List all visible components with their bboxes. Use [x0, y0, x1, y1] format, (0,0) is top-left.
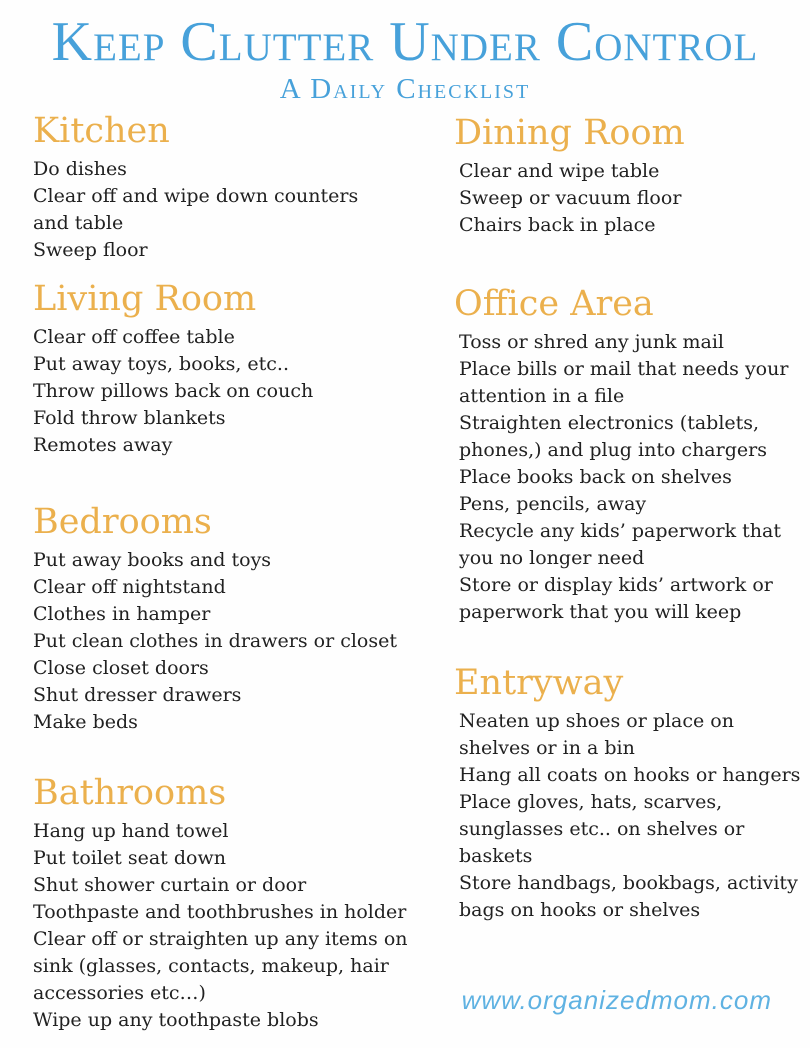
checklist-item: Straighten electronics (tablets, phones,…: [459, 410, 810, 464]
checklist-item: Clear off and wipe down counters and tab…: [33, 183, 452, 237]
section-office-area: Office Area Toss or shred any junk mail …: [452, 285, 810, 626]
checklist-item: Remotes away: [33, 432, 452, 459]
section-heading-office-area: Office Area: [454, 285, 810, 324]
checklist-item: Clothes in hamper: [33, 601, 452, 628]
checklist-item: Pens, pencils, away: [459, 491, 810, 518]
section-bedrooms: Bedrooms Put away books and toys Clear o…: [33, 503, 452, 736]
section-heading-entryway: Entryway: [454, 664, 810, 703]
checklist-item: Place bills or mail that needs your atte…: [459, 356, 810, 410]
section-living-room: Living Room Clear off coffee table Put a…: [33, 280, 452, 459]
checklist-item: Recycle any kids’ paperwork that you no …: [459, 518, 810, 572]
living-room-items: Clear off coffee table Put away toys, bo…: [33, 324, 452, 459]
dining-room-items: Clear and wipe table Sweep or vacuum flo…: [454, 158, 810, 239]
checklist-item: Toss or shred any junk mail: [459, 329, 810, 356]
bedrooms-items: Put away books and toys Clear off nights…: [33, 547, 452, 736]
checklist-item: Put clean clothes in drawers or closet: [33, 628, 452, 655]
checklist-item: Place books back on shelves: [459, 464, 810, 491]
section-dining-room: Dining Room Clear and wipe table Sweep o…: [452, 114, 810, 239]
checklist-item: Clear off or straighten up any items on …: [33, 926, 452, 1007]
section-kitchen: Kitchen Do dishes Clear off and wipe dow…: [33, 112, 452, 264]
checklist-item: Throw pillows back on couch: [33, 378, 452, 405]
website-url: www.organizedmom.com: [462, 985, 772, 1016]
left-column: Kitchen Do dishes Clear off and wipe dow…: [33, 112, 452, 1034]
section-heading-living-room: Living Room: [33, 280, 452, 319]
checklist-item: Shut dresser drawers: [33, 682, 452, 709]
checklist-item: Hang up hand towel: [33, 818, 452, 845]
checklist-item: Do dishes: [33, 156, 452, 183]
checklist-item: Make beds: [33, 709, 452, 736]
checklist-item: Clear off coffee table: [33, 324, 452, 351]
checklist-item: Close closet doors: [33, 655, 452, 682]
page-subtitle: A Daily Checklist: [0, 72, 810, 106]
checklist-item: Sweep floor: [33, 237, 452, 264]
page-title: Keep Clutter Under Control: [0, 12, 810, 72]
section-entryway: Entryway Neaten up shoes or place on she…: [452, 664, 810, 924]
section-heading-kitchen: Kitchen: [33, 112, 452, 151]
checklist-item: Wipe up any toothpaste blobs: [33, 1007, 452, 1034]
bathrooms-items: Hang up hand towel Put toilet seat down …: [33, 818, 452, 1034]
checklist-item: Put away books and toys: [33, 547, 452, 574]
checklist-item: Place gloves, hats, scarves, sunglasses …: [459, 789, 810, 870]
checklist-item: Store or display kids’ artwork or paperw…: [459, 572, 810, 626]
checklist-item: Hang all coats on hooks or hangers: [459, 762, 810, 789]
section-heading-bedrooms: Bedrooms: [33, 503, 452, 542]
right-column: Dining Room Clear and wipe table Sweep o…: [452, 112, 810, 1034]
office-area-items: Toss or shred any junk mail Place bills …: [454, 329, 810, 626]
checklist-item: Clear and wipe table: [459, 158, 810, 185]
entryway-items: Neaten up shoes or place on shelves or i…: [454, 708, 810, 924]
section-heading-bathrooms: Bathrooms: [33, 774, 452, 813]
checklist-item: Store handbags, bookbags, activity bags …: [459, 870, 810, 924]
section-heading-dining-room: Dining Room: [454, 114, 810, 153]
checklist-item: Put away toys, books, etc..: [33, 351, 452, 378]
section-bathrooms: Bathrooms Hang up hand towel Put toilet …: [33, 774, 452, 1034]
kitchen-items: Do dishes Clear off and wipe down counte…: [33, 156, 452, 264]
checklist-item: Toothpaste and toothbrushes in holder: [33, 899, 452, 926]
checklist-item: Sweep or vacuum floor: [459, 185, 810, 212]
checklist-item: Shut shower curtain or door: [33, 872, 452, 899]
checklist-item: Neaten up shoes or place on shelves or i…: [459, 708, 810, 762]
document-header: Keep Clutter Under Control A Daily Check…: [0, 12, 810, 106]
checklist-columns: Kitchen Do dishes Clear off and wipe dow…: [33, 112, 810, 1034]
checklist-item: Chairs back in place: [459, 212, 810, 239]
checklist-item: Put toilet seat down: [33, 845, 452, 872]
checklist-item: Fold throw blankets: [33, 405, 452, 432]
checklist-document: Keep Clutter Under Control A Daily Check…: [0, 0, 810, 1048]
checklist-item: Clear off nightstand: [33, 574, 452, 601]
